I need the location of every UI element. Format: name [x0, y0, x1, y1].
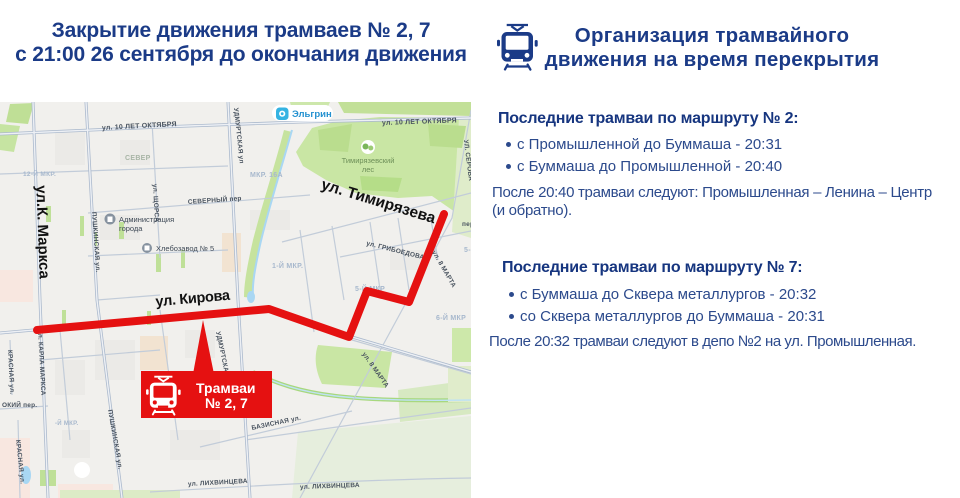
svg-text:ул.К. Маркса: ул.К. Маркса [32, 185, 52, 280]
svg-text:города: города [119, 224, 143, 233]
svg-text:ОКИЙ пер.: ОКИЙ пер. [2, 400, 37, 409]
svg-text:№ 2, 7: № 2, 7 [205, 395, 248, 411]
svg-text:МКР. 16А: МКР. 16А [250, 172, 283, 179]
svg-text:Тимирязевский: Тимирязевский [342, 156, 395, 165]
svg-text:СЕВЕР: СЕВЕР [125, 155, 151, 162]
svg-text:лес: лес [362, 165, 375, 174]
svg-text:Трамваи: Трамваи [196, 380, 256, 396]
svg-text:пер: пер [462, 221, 471, 228]
svg-text:Эльгрин: Эльгрин [292, 109, 332, 120]
svg-text:Администрация: Администрация [119, 215, 174, 224]
svg-text:12-Й МКР.: 12-Й МКР. [23, 169, 56, 178]
svg-text:Хлебозавод № 5: Хлебозавод № 5 [156, 244, 214, 253]
svg-text:5-Й: 5-Й [464, 245, 471, 254]
svg-text:1-Й МКР.: 1-Й МКР. [272, 261, 303, 270]
svg-text:-Й МКР.: -Й МКР. [55, 419, 79, 427]
svg-text:6-Й МКР: 6-Й МКР [436, 313, 466, 322]
